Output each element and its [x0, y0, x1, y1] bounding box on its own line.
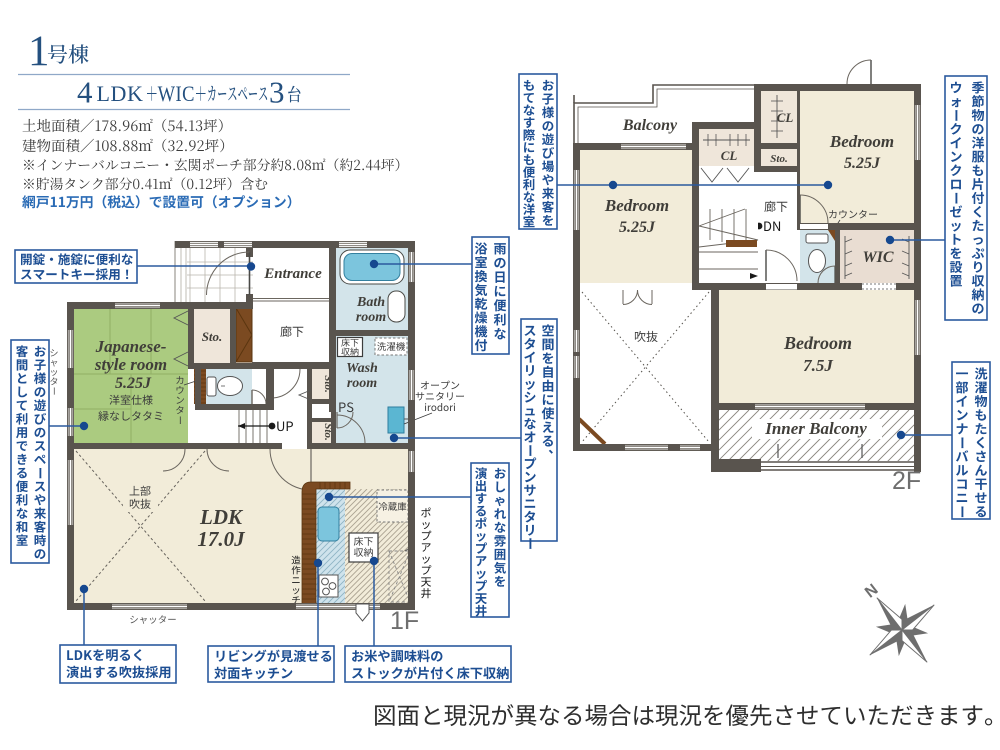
svg-text:5.25J: 5.25J	[619, 219, 656, 236]
svg-text:1F: 1F	[390, 607, 419, 635]
svg-text:Bath: Bath	[356, 295, 385, 310]
svg-text:3: 3	[269, 75, 285, 110]
svg-text:2F: 2F	[892, 467, 921, 495]
svg-text:Wash: Wash	[346, 361, 378, 376]
svg-text:LDK: LDK	[97, 81, 144, 106]
svg-text:N: N	[862, 581, 881, 601]
svg-text:Japanese-: Japanese-	[95, 337, 167, 356]
svg-text:5.25J: 5.25J	[115, 375, 152, 392]
svg-text:CL: CL	[777, 110, 794, 125]
svg-text:Inner Balcony: Inner Balcony	[764, 419, 867, 438]
svg-text:1: 1	[28, 28, 50, 75]
svg-text:Entrance: Entrance	[263, 266, 322, 282]
svg-text:style room: style room	[94, 355, 167, 374]
svg-text:room: room	[356, 310, 386, 325]
svg-text:4: 4	[77, 75, 93, 110]
svg-text:7.5J: 7.5J	[803, 356, 833, 375]
svg-text:WIC: WIC	[158, 83, 195, 107]
svg-text:Balcony: Balcony	[622, 117, 678, 134]
svg-text:5.25J: 5.25J	[844, 155, 881, 172]
svg-text:CL: CL	[721, 148, 738, 163]
svg-text:Sto.: Sto.	[202, 329, 223, 344]
svg-text:Bedroom: Bedroom	[604, 196, 669, 215]
svg-text:Bedroom: Bedroom	[829, 132, 894, 151]
svg-text:WIC: WIC	[862, 249, 893, 266]
svg-text:17.0J: 17.0J	[197, 527, 246, 551]
svg-text:Bedroom: Bedroom	[783, 333, 852, 353]
svg-text:LDK: LDK	[199, 505, 244, 529]
svg-text:Sto.: Sto.	[770, 153, 787, 165]
svg-text:room: room	[347, 376, 377, 391]
